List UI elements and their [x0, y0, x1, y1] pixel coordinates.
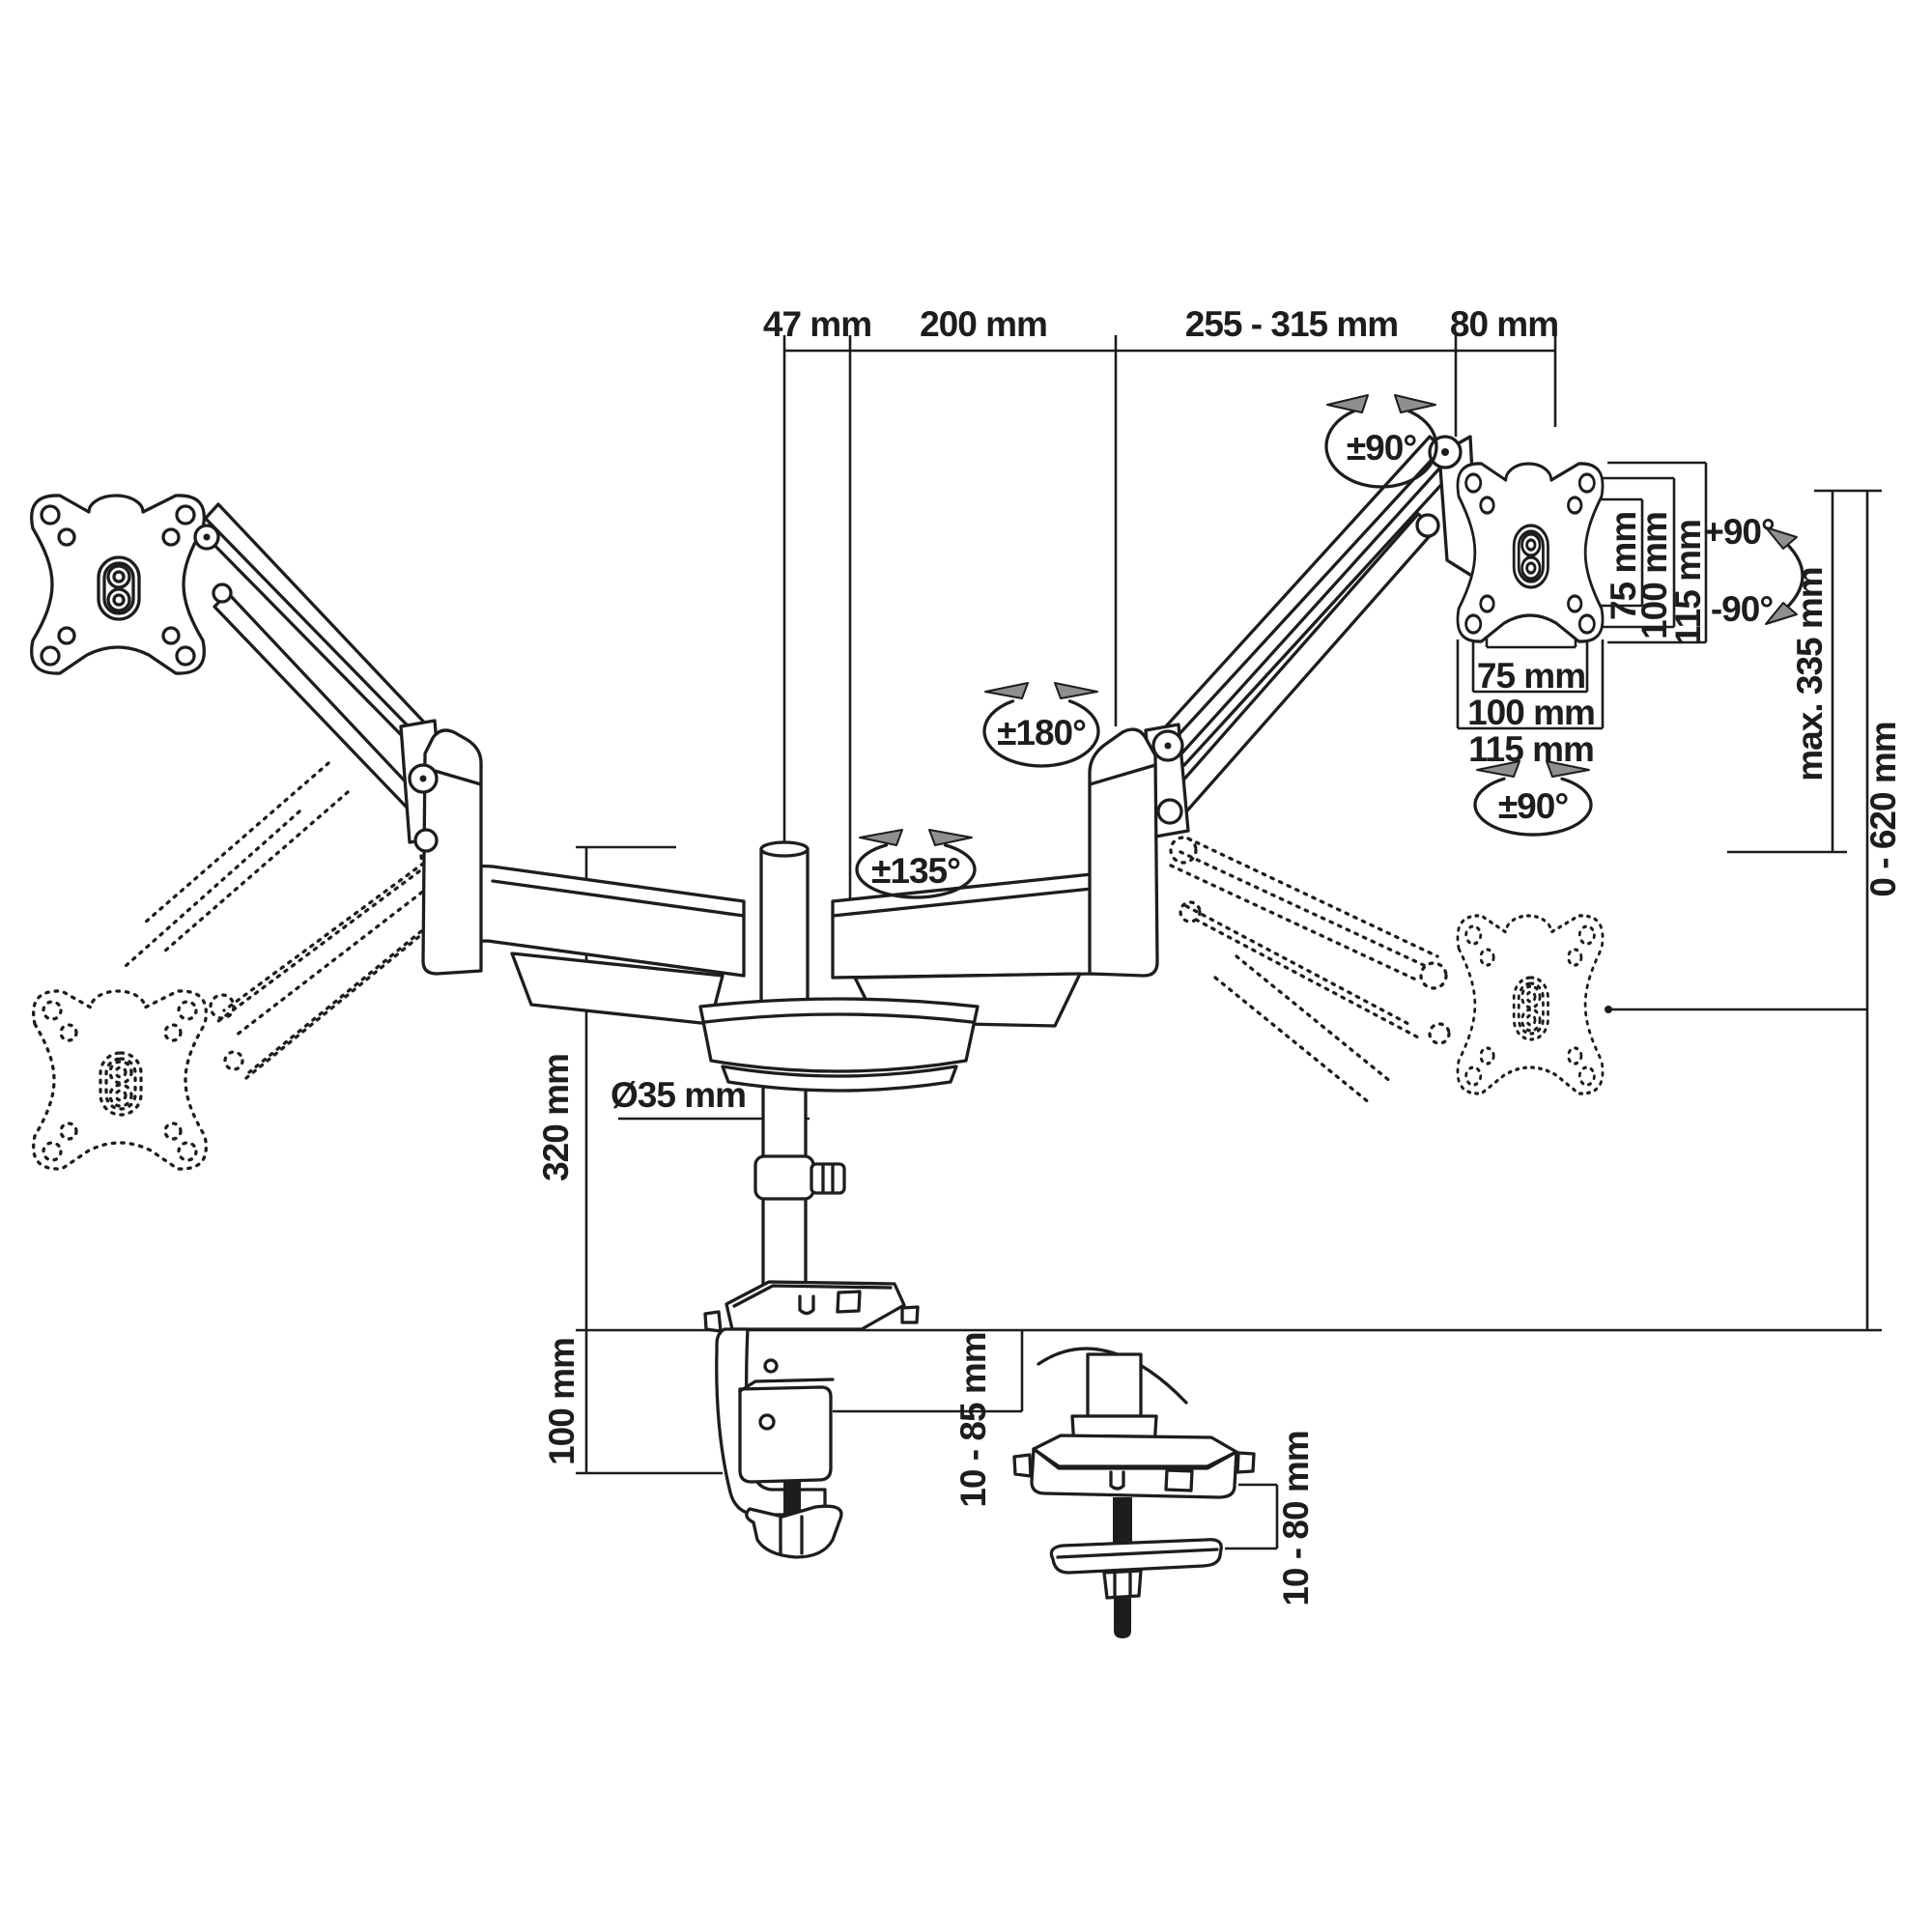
rotate-arrow-icon	[1327, 395, 1368, 412]
rotation-label-top: ±90°	[1347, 428, 1416, 468]
diagram-page: 47 mm 200 mm 255 - 315 mm 80 mm ±90° ±18…	[0, 0, 1932, 1932]
dim-label-200mm: 200 mm	[920, 304, 1047, 344]
rotate-arrow-icon	[860, 830, 902, 845]
vesa-plate-top-right	[1458, 464, 1603, 641]
elbow-joint-right	[1090, 724, 1188, 976]
desk-clamp-base	[705, 1282, 918, 1557]
horizontal-arm-left	[442, 867, 744, 1024]
height-range-label: 0 - 620 mm	[1863, 722, 1903, 896]
vesa-height-115: 115 mm	[1668, 520, 1708, 645]
vesa-width-115: 115 mm	[1468, 729, 1594, 769]
vesa-plate-dotted-right	[1458, 916, 1603, 1094]
grommet-mount-inset	[1014, 1349, 1254, 1638]
rotation-label-bottom: ±90°	[1498, 786, 1568, 826]
dim-label-255-315mm: 255 - 315 mm	[1185, 304, 1398, 344]
gas-spring-arm-right	[1155, 437, 1461, 817]
elbow-joint-left	[401, 721, 481, 974]
rotate-arrow-icon	[985, 683, 1028, 698]
vesa-mount-head	[1417, 437, 1603, 641]
vesa-plate-dotted-left	[34, 991, 207, 1169]
tilt-label-up: +90°	[1703, 512, 1775, 552]
rotate-arrow-icon	[929, 830, 972, 845]
monitor-arm-dimension-drawing: 47 mm 200 mm 255 - 315 mm 80 mm ±90° ±18…	[0, 0, 1932, 1932]
rotate-arrow-icon	[1055, 683, 1097, 698]
rotation-label-elbow: ±180°	[997, 713, 1086, 753]
dim-label-47mm: 47 mm	[763, 304, 871, 344]
vesa-width-75: 75 mm	[1477, 656, 1585, 696]
vesa-width-100: 100 mm	[1467, 693, 1595, 732]
rotate-arrow-icon	[1395, 395, 1435, 412]
pole-height-label: 320 mm	[536, 1054, 576, 1181]
grommet-thickness-label: 10 - 80 mm	[1276, 1431, 1316, 1605]
clamp-plate-height-label: 100 mm	[542, 1338, 582, 1465]
vesa-plate-left	[32, 496, 205, 673]
vesa-mount-left	[32, 496, 231, 673]
pole-diameter-label: Ø35 mm	[611, 1075, 746, 1115]
lift-range-label: max. 335 mm	[1790, 567, 1830, 781]
tilt-label-down: -90°	[1711, 589, 1773, 629]
dim-label-80mm: 80 mm	[1450, 304, 1558, 344]
clamp-thickness-label: 10 - 85 mm	[953, 1332, 993, 1507]
rotation-label-base: ±135°	[871, 851, 960, 891]
